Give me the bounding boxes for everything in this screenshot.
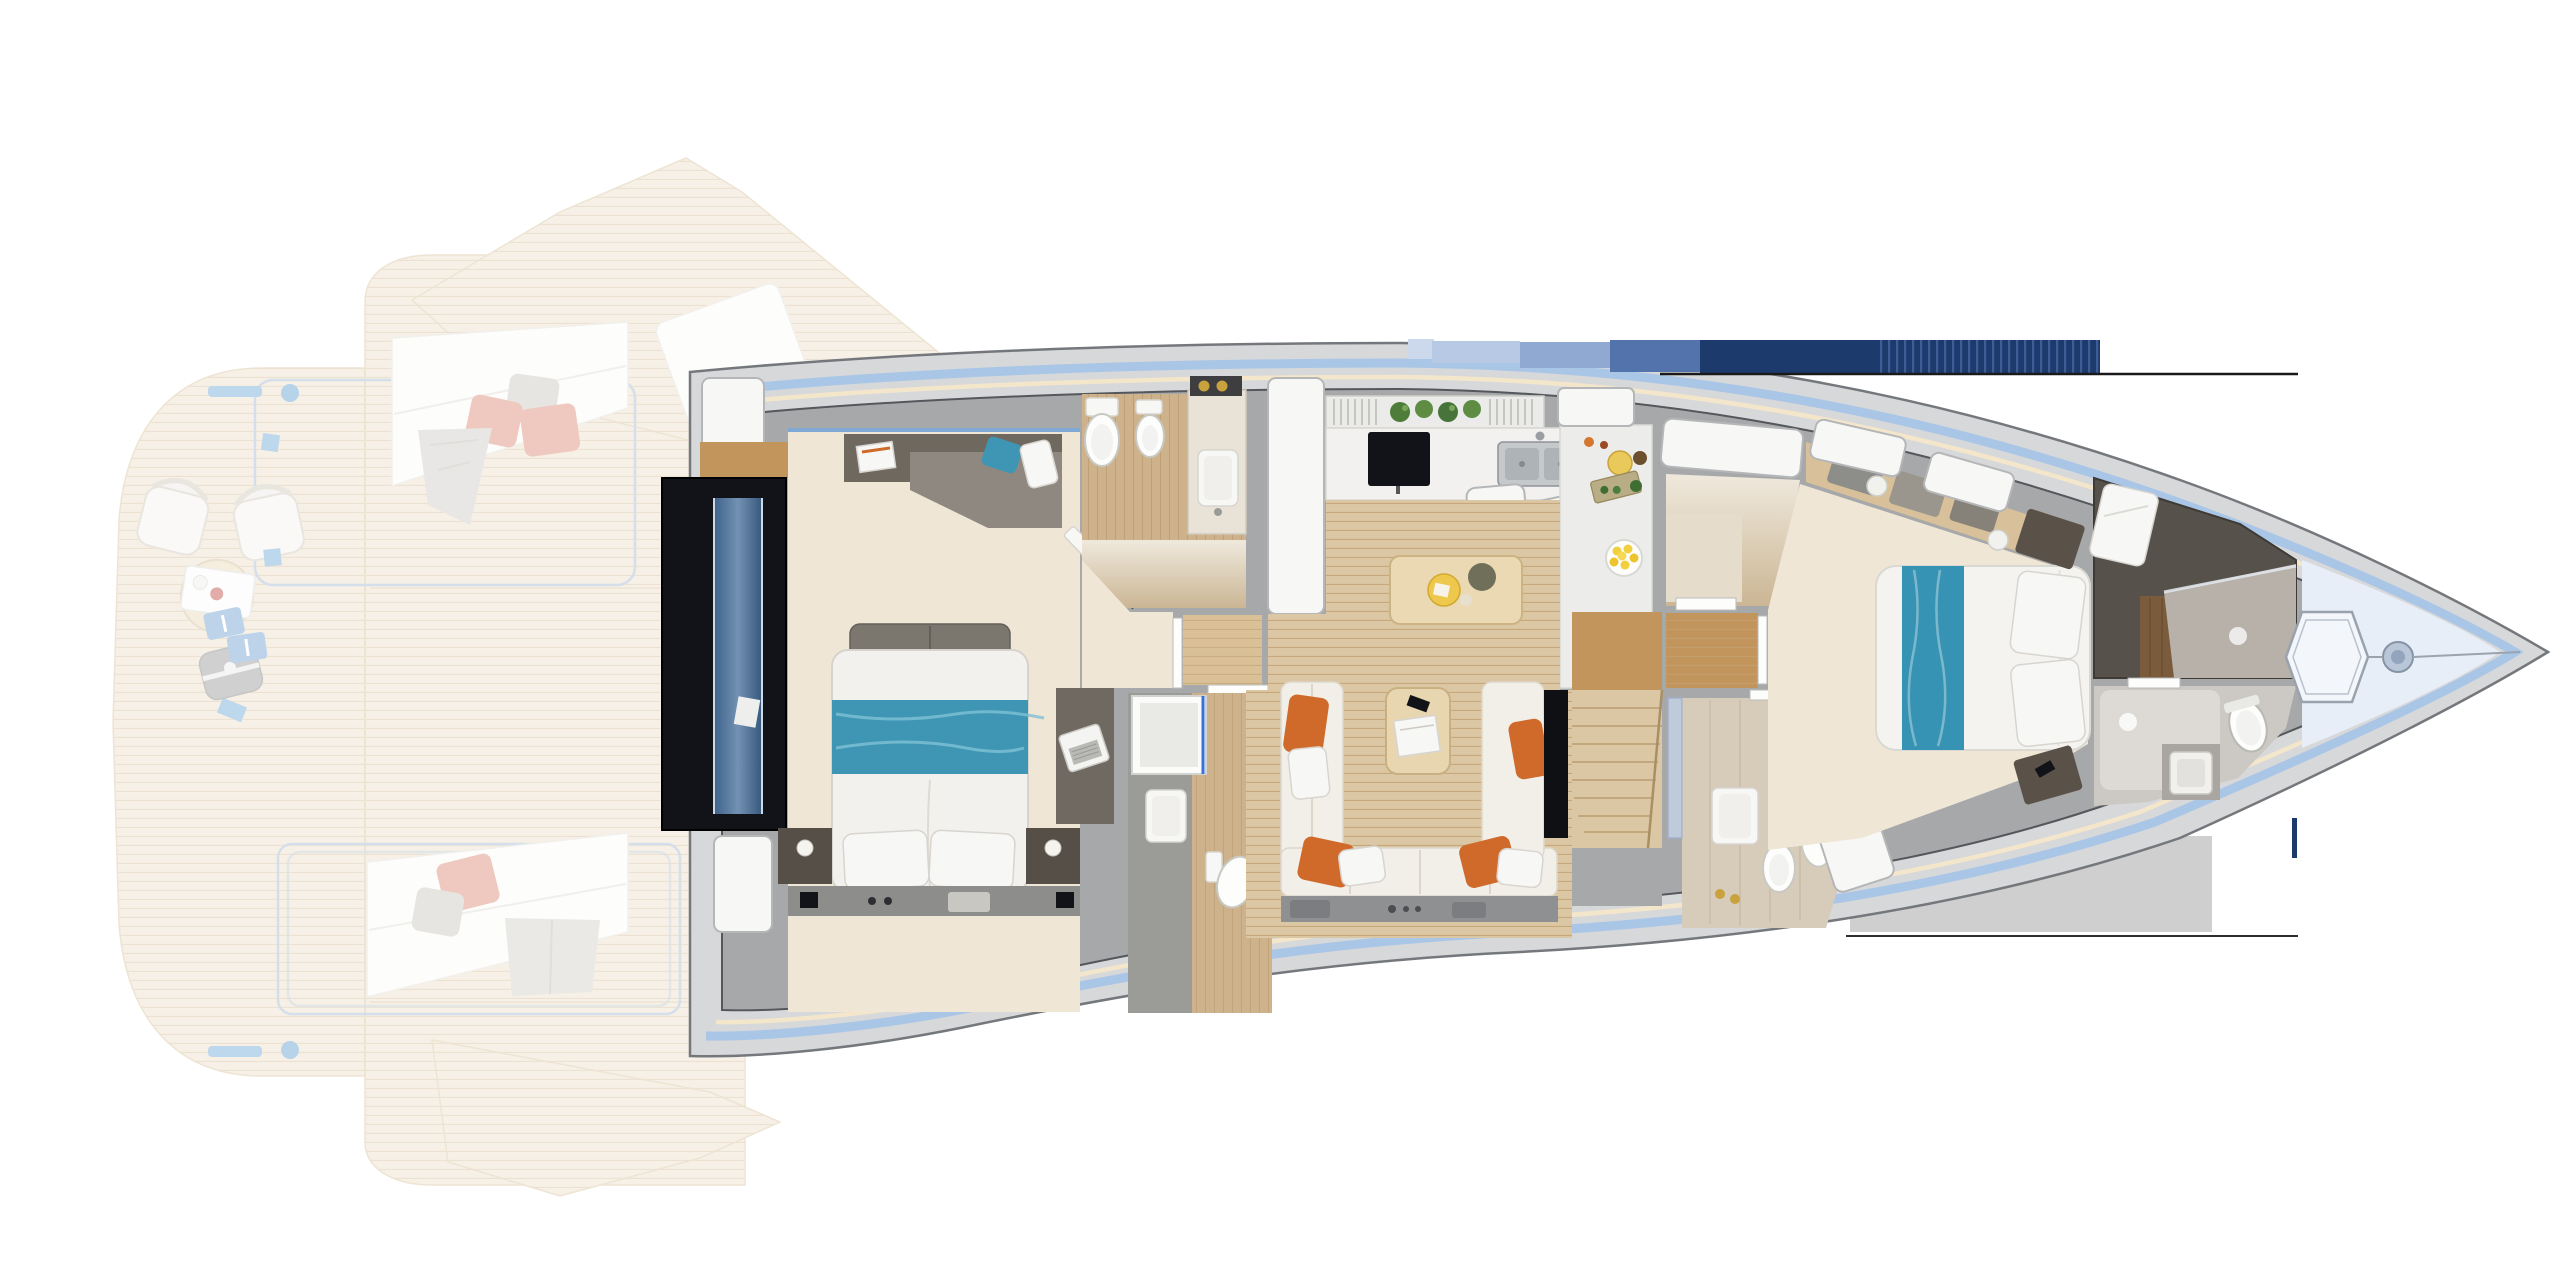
bidet <box>1136 400 1164 457</box>
door-gap <box>2128 678 2180 688</box>
blue-mat <box>263 548 282 567</box>
coffee-table <box>1386 688 1450 774</box>
cleat <box>281 384 299 402</box>
vent <box>1452 902 1486 918</box>
under-stair <box>1572 848 1662 906</box>
greens <box>1630 480 1642 492</box>
white-pillow <box>1287 746 1330 800</box>
band-segment <box>1432 341 1520 363</box>
spice <box>1600 441 1608 449</box>
coral-pillow <box>519 402 581 457</box>
sconce <box>1056 892 1074 908</box>
lamp <box>1045 840 1061 856</box>
cup <box>1460 594 1472 606</box>
yacht-floorplan-canvas: Motor yacht lower-deck floor plan — top … <box>0 0 2560 1280</box>
cleat <box>281 1041 299 1059</box>
blue-mat <box>261 433 280 452</box>
gray-pillow <box>411 886 466 938</box>
platform-planks <box>113 368 365 1076</box>
band-segment <box>1408 339 1434 359</box>
faucet <box>1214 508 1222 516</box>
gold-fitting <box>1715 889 1725 899</box>
glass-partition <box>1668 698 1682 838</box>
tv <box>1368 432 1430 486</box>
orange-pillow <box>1282 693 1330 756</box>
sconce <box>800 892 818 908</box>
gold-fitting <box>1199 381 1210 392</box>
led-strip <box>788 428 1080 432</box>
white-pillow <box>1496 848 1544 888</box>
step-pad <box>226 631 267 663</box>
faucet <box>1536 432 1545 441</box>
pillow <box>2010 659 2086 748</box>
band-segment <box>1700 340 1880 374</box>
lemon-bowl <box>1606 540 1642 576</box>
lamp <box>797 840 813 856</box>
rolled-towel <box>1988 530 2008 550</box>
gold-fitting <box>1217 381 1228 392</box>
white-pillow <box>1338 845 1387 887</box>
fridge-cabinet <box>1268 378 1324 614</box>
band-segment <box>1520 342 1610 368</box>
rolled-towel <box>1867 476 1887 496</box>
band-segment <box>1610 340 1700 372</box>
door-gap <box>1758 616 1767 684</box>
blue-glass-panel <box>714 498 762 814</box>
band-segment-striped <box>1880 340 2100 374</box>
stair-run <box>1572 690 1662 848</box>
hull-window <box>1558 388 1634 426</box>
dining-table <box>1390 556 1522 624</box>
magazines <box>1394 715 1441 756</box>
pillow <box>2009 570 2086 660</box>
bowl <box>1633 451 1647 465</box>
pillow <box>843 830 930 890</box>
salon <box>1246 682 1572 938</box>
rug <box>1666 514 1742 602</box>
door-gap <box>1173 618 1182 688</box>
vent <box>1290 900 1330 918</box>
fittings-shelf <box>1190 376 1242 396</box>
floorplan-svg: Motor yacht lower-deck floor plan — top … <box>0 0 2560 1280</box>
staircase-to-main-deck <box>1572 612 1662 906</box>
hull-window <box>714 836 772 932</box>
round-platter <box>1468 563 1496 591</box>
anchor-locker-hatch <box>2286 612 2368 702</box>
bench <box>948 892 990 912</box>
transom-step-strip <box>208 386 262 397</box>
stair-landing <box>1572 612 1662 690</box>
book <box>856 442 895 473</box>
ceiling-light <box>2119 713 2137 731</box>
toilet <box>1085 398 1119 466</box>
tv-cabinet <box>1544 690 1568 838</box>
pillow <box>929 830 1016 890</box>
cabinet-band <box>788 886 1080 916</box>
lobby-wood-floor <box>700 442 788 478</box>
door-gap <box>1676 598 1736 610</box>
gold-fitting <box>1730 894 1740 904</box>
bread-plate <box>1608 451 1632 475</box>
navy-tick <box>2292 818 2297 858</box>
spice <box>1584 437 1594 447</box>
guest-bathroom <box>1082 376 1246 608</box>
transom-step-strip <box>208 1046 262 1057</box>
ceiling-light <box>2229 627 2247 645</box>
